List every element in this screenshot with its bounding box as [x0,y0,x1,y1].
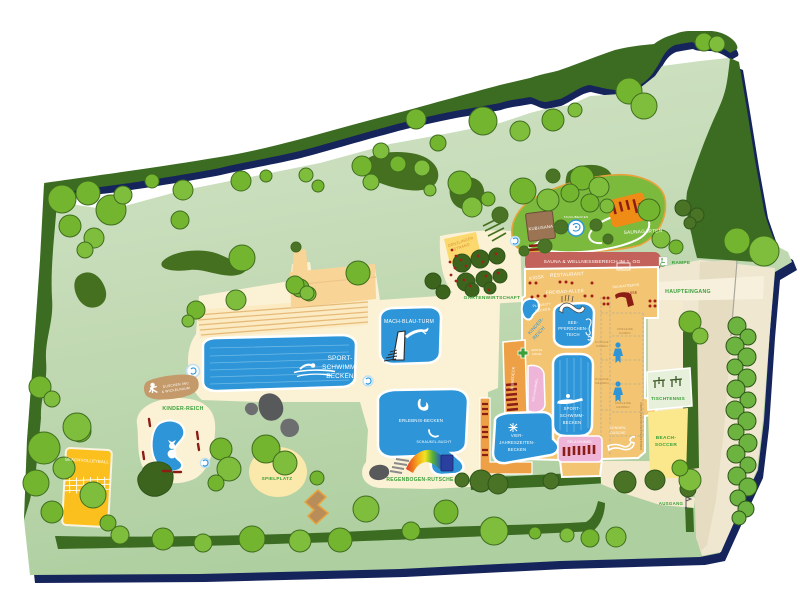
svg-text:HILFE: HILFE [532,352,542,356]
svg-text:KINDER-REICH: KINDER-REICH [162,406,203,412]
svg-text:SPORT-: SPORT- [328,355,353,362]
svg-text:PFERDCHEN-: PFERDCHEN- [558,326,588,331]
svg-text:TEICH: TEICH [566,332,580,337]
svg-text:RAMPE: RAMPE [672,260,691,266]
svg-text:DAMEN: DAMEN [596,344,607,348]
svg-text:REGENBOGEN-RUTSCHE: REGENBOGEN-RUTSCHE [386,477,454,483]
svg-text:BECKEN: BECKEN [563,420,581,425]
svg-text:HAUPTEINGANG: HAUPTEINGANG [665,289,711,295]
svg-text:SONNEN-: SONNEN- [609,426,626,430]
svg-text:TAUCHBECKEN: TAUCHBECKEN [564,215,589,219]
svg-text:BECKEN: BECKEN [326,373,354,380]
svg-text:AUSGANG: AUSGANG [659,501,684,506]
svg-text:KINDERWAGEN/FREIBAD GANG: KINDERWAGEN/FREIBAD GANG [639,402,643,450]
svg-text:SOCCER: SOCCER [655,442,678,448]
svg-text:ERLEBNIS-BECKEN: ERLEBNIS-BECKEN [399,418,443,423]
svg-text:GARTENWIRTSCHAFT: GARTENWIRTSCHAFT [464,295,521,301]
svg-text:DAMEN: DAMEN [619,331,630,335]
svg-text:SAUNA & WELLNESSBEREICH IM 1.: SAUNA & WELLNESSBEREICH IM 1. OG [544,259,641,265]
svg-text:SEE-: SEE- [568,320,579,325]
svg-text:SPORT-: SPORT- [564,406,581,411]
svg-text:BECKEN: BECKEN [508,447,526,452]
svg-text:DUSCHE: DUSCHE [610,431,626,435]
svg-text:SPIELPLATZ: SPIELPLATZ [262,476,293,481]
svg-text:SCHWIMM-: SCHWIMM- [560,413,584,418]
svg-text:LIFT: LIFT [619,266,627,270]
svg-text:BEACH-: BEACH- [656,435,677,441]
svg-text:SCHWIMM-: SCHWIMM- [322,364,358,371]
svg-text:JAHRESZEITEN-: JAHRESZEITEN- [499,440,535,445]
svg-text:MACH-BLAU-TURM: MACH-BLAU-TURM [384,319,434,325]
svg-text:SCHAUKEL-BUCHT: SCHAUKEL-BUCHT [417,440,453,444]
svg-text:VIER-: VIER- [511,433,524,438]
svg-text:RELAXHIMMEL: RELAXHIMMEL [567,440,592,444]
svg-text:HERREN: HERREN [595,381,608,385]
svg-text:TISCHTENNIS: TISCHTENNIS [651,396,685,401]
svg-text:HERREN: HERREN [616,405,629,409]
